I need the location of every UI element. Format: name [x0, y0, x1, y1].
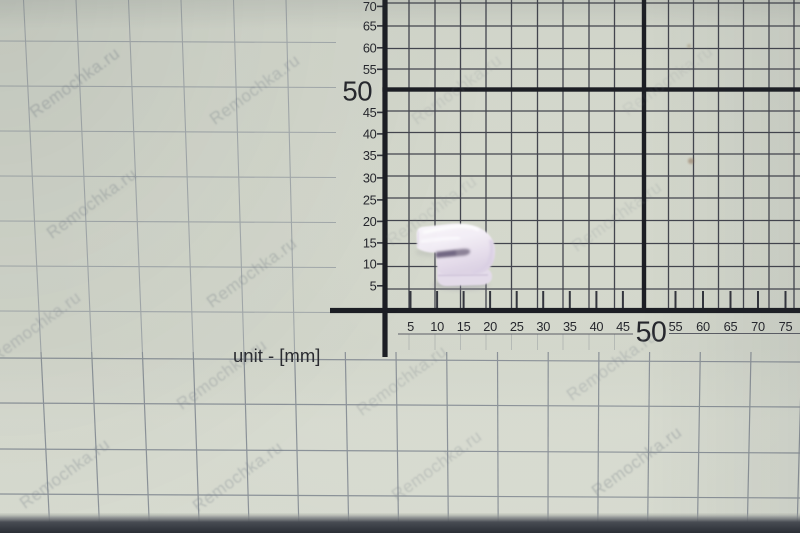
svg-text:40: 40 — [590, 319, 604, 334]
svg-text:25: 25 — [510, 319, 524, 334]
svg-text:30: 30 — [536, 319, 550, 334]
svg-text:45: 45 — [616, 319, 630, 334]
svg-text:35: 35 — [563, 319, 577, 334]
